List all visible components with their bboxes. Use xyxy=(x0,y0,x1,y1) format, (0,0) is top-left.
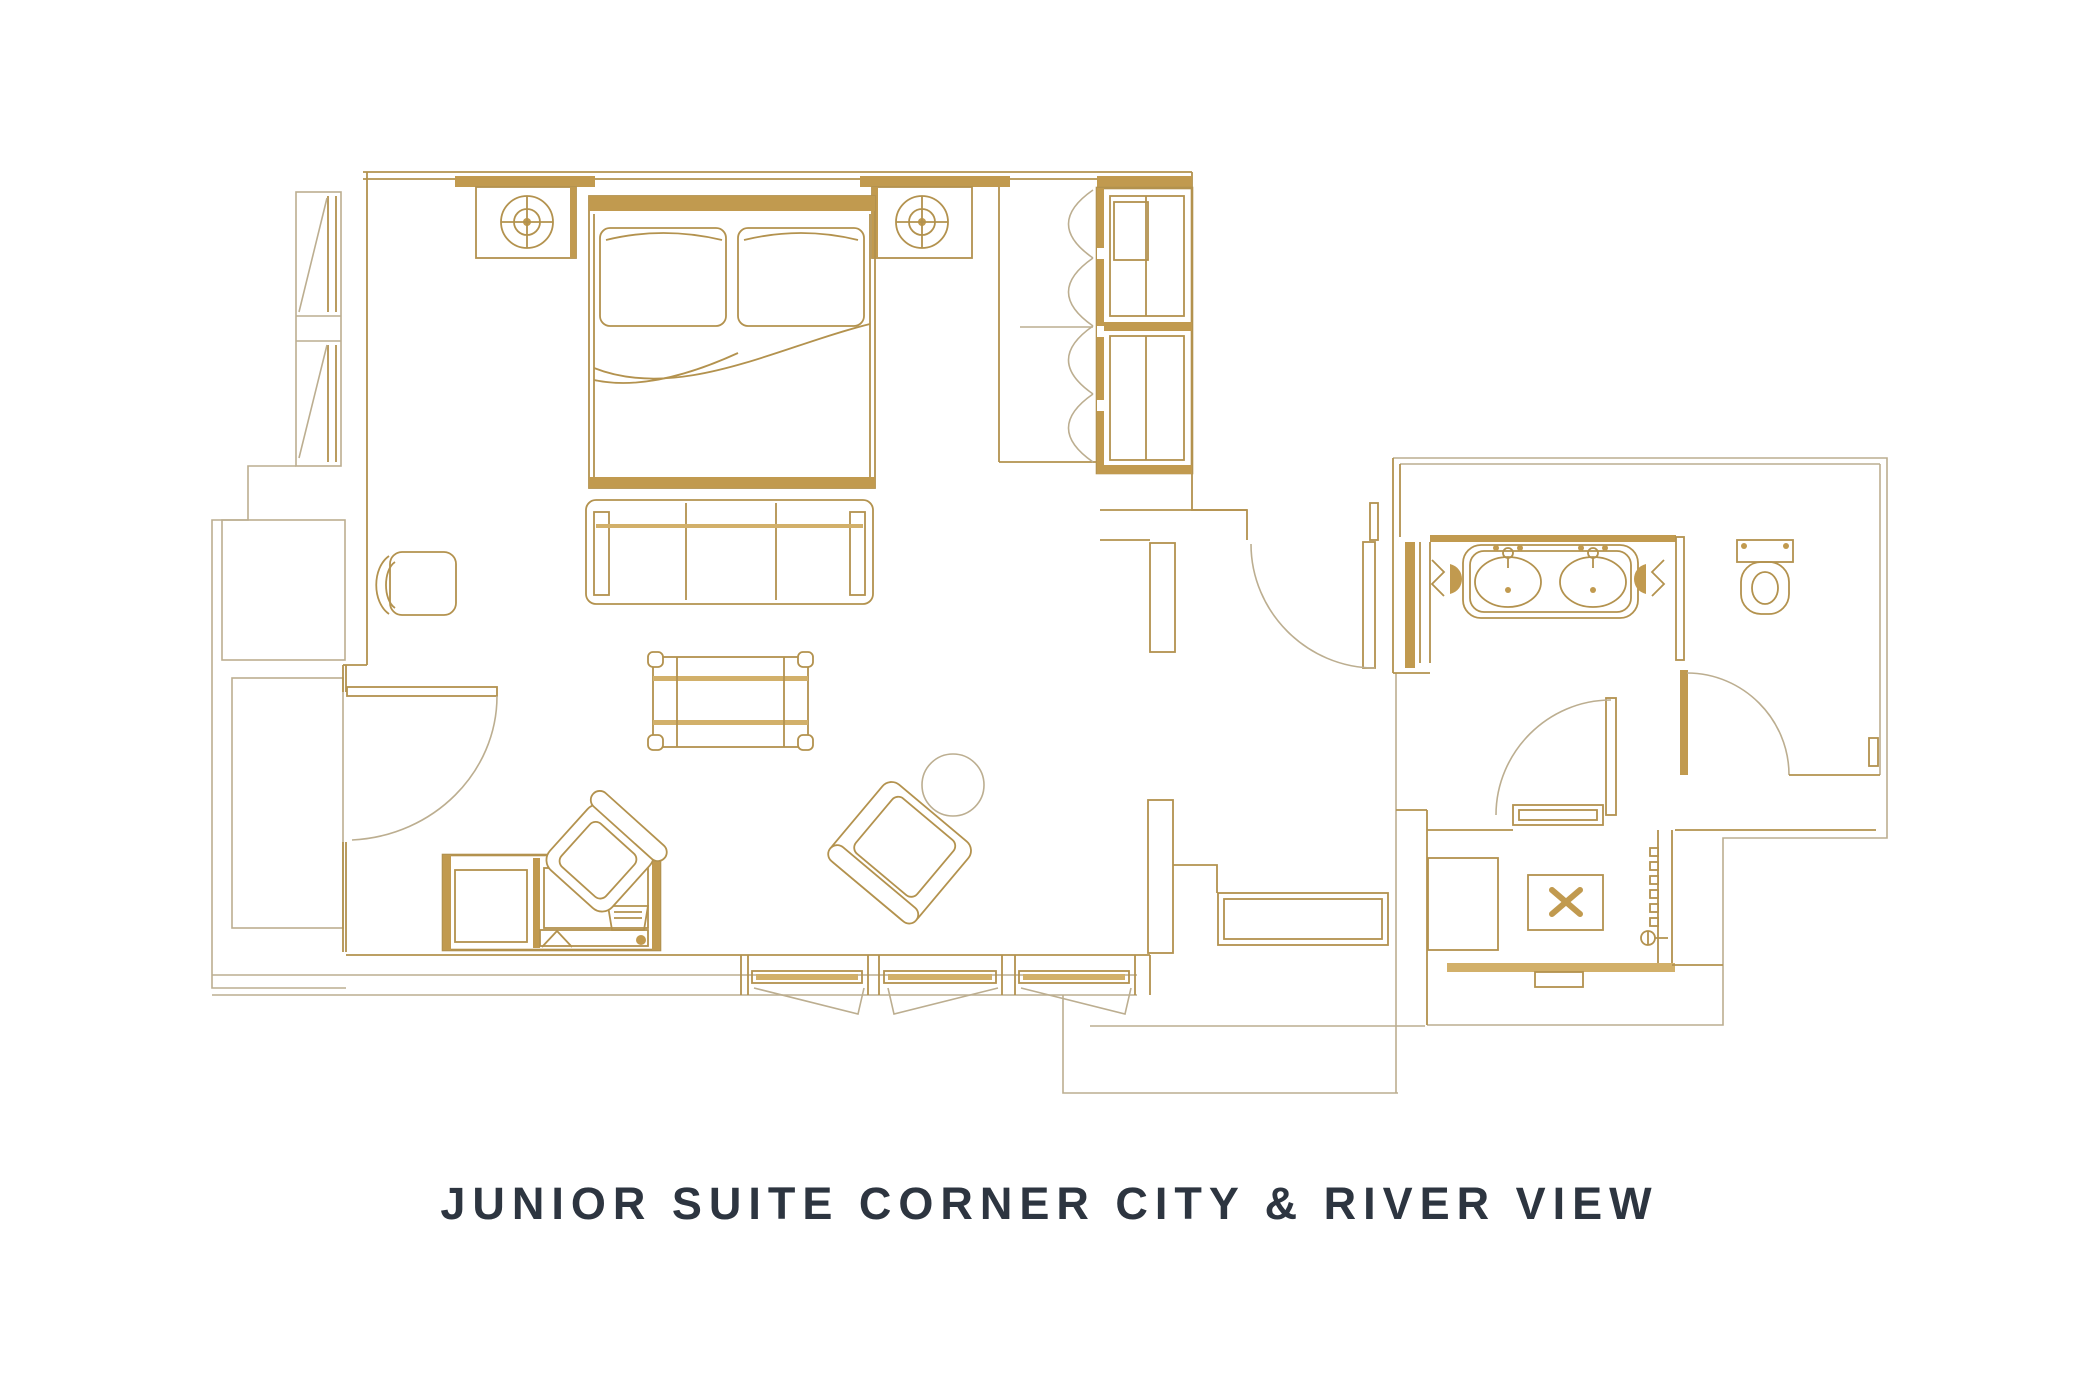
shower-drain xyxy=(1528,875,1603,930)
king-bed xyxy=(589,196,875,488)
ledge-left xyxy=(455,176,595,187)
lounge-armchair xyxy=(825,777,976,927)
exterior-bay-lower xyxy=(232,678,343,928)
ledge-right xyxy=(860,176,1010,187)
tile-notches xyxy=(1650,848,1658,926)
wardrobe-shelf xyxy=(1114,202,1148,260)
desk-chair xyxy=(536,787,670,921)
nightstand-left xyxy=(476,187,576,258)
toilet-icon xyxy=(1737,540,1793,614)
shower-door xyxy=(1496,698,1616,815)
wardrobe xyxy=(1097,176,1192,474)
shower-bench xyxy=(1428,858,1498,950)
drape-mark xyxy=(888,988,998,1014)
paper-holder xyxy=(1869,738,1878,766)
valet-chair xyxy=(376,552,456,615)
drape-mark xyxy=(1021,988,1131,1014)
wall-fixture-left xyxy=(1450,564,1462,594)
luggage-console xyxy=(1218,893,1388,945)
laptop-icon xyxy=(608,906,648,930)
toilet-door xyxy=(1680,670,1789,775)
double-sink-vanity xyxy=(1430,535,1676,618)
door-swing-arc xyxy=(1251,544,1375,668)
door-leaf xyxy=(1680,670,1688,775)
door-leaf xyxy=(347,687,497,696)
towel-hook-right xyxy=(1652,560,1664,596)
coffee-table xyxy=(648,652,813,750)
wall-fixture-right xyxy=(1634,564,1646,594)
round-side-table xyxy=(922,754,984,816)
south-window-band xyxy=(346,955,1150,1014)
door-swing-arc xyxy=(352,696,497,840)
bifold-closet-doors xyxy=(1020,190,1093,462)
table-lamp-right-icon xyxy=(896,196,948,248)
door-leaf xyxy=(1363,542,1375,668)
door-swing-arc xyxy=(1687,673,1789,775)
west-window xyxy=(296,192,341,466)
niche xyxy=(1535,972,1583,987)
pillows xyxy=(600,228,864,326)
sink-left xyxy=(1475,545,1541,607)
nightstand-right xyxy=(872,187,972,258)
glass-screen xyxy=(1513,805,1603,825)
door-swing-arc xyxy=(1496,700,1611,815)
headboard xyxy=(589,196,875,211)
plan-title: JUNIOR SUITE CORNER CITY & RIVER VIEW xyxy=(0,1178,2099,1230)
drape-mark xyxy=(754,988,864,1014)
entry-door xyxy=(347,687,497,840)
sink-right xyxy=(1560,545,1626,607)
blanket-fold xyxy=(594,324,870,379)
bathroom-door xyxy=(1251,503,1378,668)
tray-mark xyxy=(542,931,572,947)
toilet-room xyxy=(1676,537,1880,775)
shower-south-wall xyxy=(1447,963,1675,972)
table-lamp-left-icon xyxy=(501,196,553,248)
towel-hook-left xyxy=(1432,560,1444,596)
bathroom-west-wall xyxy=(1393,458,1430,1025)
shower-room xyxy=(1427,698,1876,987)
foot-bench xyxy=(586,500,873,604)
exterior-bay-upper xyxy=(222,520,345,660)
floor-plan-page: JUNIOR SUITE CORNER CITY & RIVER VIEW xyxy=(0,0,2099,1400)
hallway-walls xyxy=(1148,543,1388,953)
door-leaf xyxy=(1606,698,1616,815)
footboard xyxy=(589,477,875,488)
shower-head-icon xyxy=(1641,931,1668,945)
